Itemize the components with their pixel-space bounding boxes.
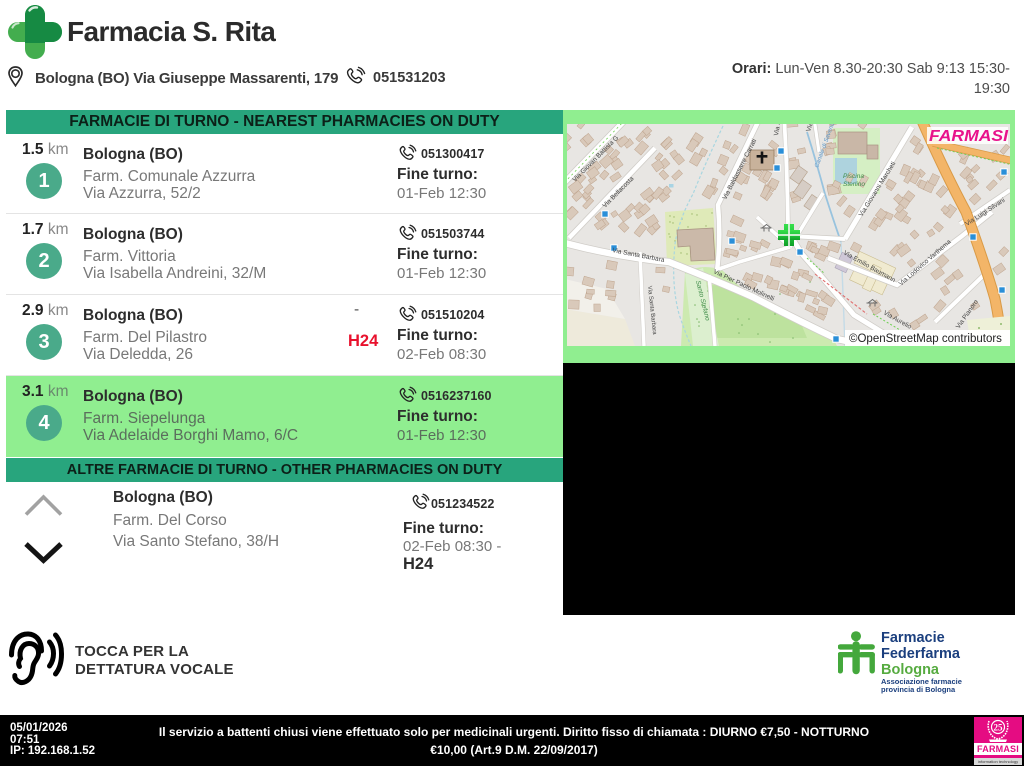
svg-text:Sterlino: Sterlino — [843, 181, 865, 188]
svg-text:25: 25 — [994, 723, 1004, 733]
svg-text:Piscina: Piscina — [843, 173, 864, 180]
svg-text:©OpenStreetMap contributors: ©OpenStreetMap contributors — [849, 333, 1002, 345]
svg-text:FARMASI: FARMASI — [929, 128, 1009, 145]
